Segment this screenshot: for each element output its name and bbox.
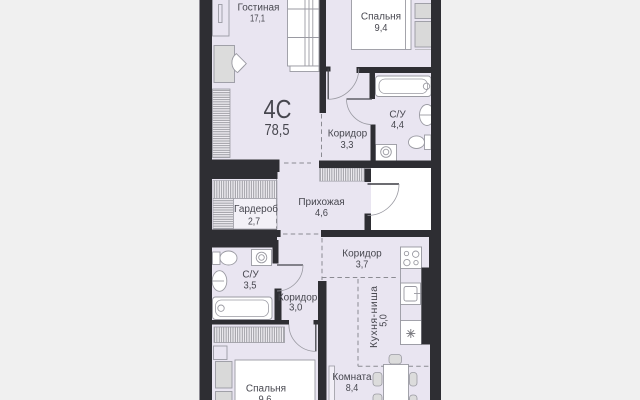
svg-text:3,0: 3,0 [289,303,303,314]
svg-text:Прихожая: Прихожая [298,197,344,208]
svg-text:3,3: 3,3 [341,140,354,151]
svg-text:78,5: 78,5 [265,122,290,139]
svg-text:Коридор: Коридор [328,129,368,140]
svg-text:4С: 4С [264,94,292,124]
svg-text:Спальня: Спальня [361,12,401,23]
svg-text:9,6: 9,6 [259,395,272,400]
svg-text:Гостиная: Гостиная [238,3,280,14]
svg-text:3,7: 3,7 [356,260,369,271]
svg-text:С/У: С/У [389,110,406,121]
svg-text:Спальня: Спальня [246,383,286,394]
svg-text:4,4: 4,4 [391,120,404,131]
svg-text:Коридор: Коридор [342,249,382,260]
svg-text:Комната: Комната [332,372,372,383]
svg-text:3,5: 3,5 [244,281,257,292]
svg-text:9,4: 9,4 [375,23,388,34]
svg-text:5,0: 5,0 [379,314,390,327]
svg-text:4,6: 4,6 [315,208,328,219]
svg-text:С/У: С/У [242,269,259,280]
svg-text:17,1: 17,1 [250,14,265,25]
svg-text:Гардероб: Гардероб [234,203,278,215]
svg-text:8,4: 8,4 [346,383,359,394]
svg-text:2,7: 2,7 [248,216,260,227]
